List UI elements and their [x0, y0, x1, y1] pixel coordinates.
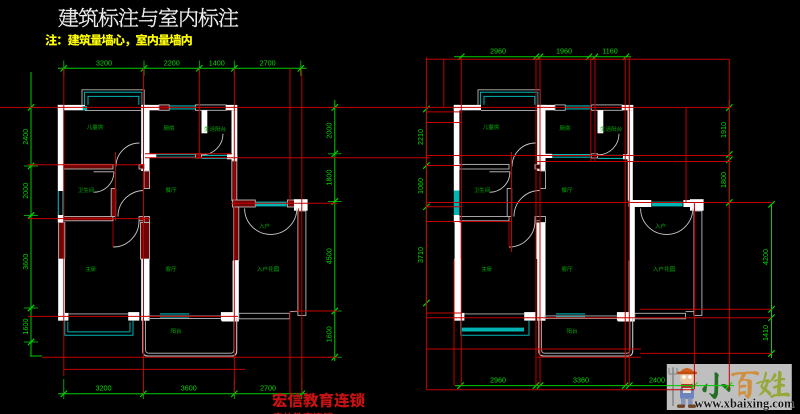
svg-text:3600: 3600	[181, 384, 197, 393]
svg-text:1600: 1600	[325, 326, 334, 342]
svg-text:4500: 4500	[325, 248, 334, 264]
svg-text:2960: 2960	[490, 375, 506, 384]
svg-text:3360: 3360	[573, 375, 589, 384]
svg-text:1910: 1910	[719, 122, 728, 138]
svg-text:1400: 1400	[209, 59, 225, 68]
svg-text:1160: 1160	[602, 47, 617, 56]
svg-text:2000: 2000	[325, 123, 334, 139]
svg-text:1960: 1960	[556, 47, 572, 56]
svg-text:2200: 2200	[164, 59, 180, 68]
svg-text:3600: 3600	[21, 254, 30, 270]
svg-text:1060: 1060	[416, 178, 425, 194]
svg-text:2700: 2700	[260, 384, 276, 393]
svg-text:3200: 3200	[96, 59, 112, 68]
svg-text:4200: 4200	[761, 249, 770, 265]
svg-text:2000: 2000	[21, 183, 30, 199]
svg-text:2400: 2400	[649, 375, 665, 384]
svg-text:2960: 2960	[490, 47, 506, 56]
svg-text:3200: 3200	[96, 384, 112, 393]
svg-text:1800: 1800	[325, 170, 334, 186]
svg-text:2400: 2400	[21, 129, 30, 145]
svg-text:1800: 1800	[719, 172, 728, 188]
svg-text:1600: 1600	[21, 319, 30, 335]
svg-text:www.xbaixing.com: www.xbaixing.com	[695, 397, 795, 411]
svg-text:2210: 2210	[416, 129, 425, 145]
svg-text:2700: 2700	[260, 59, 276, 68]
svg-text:1410: 1410	[761, 325, 770, 341]
svg-text:3710: 3710	[416, 247, 425, 263]
